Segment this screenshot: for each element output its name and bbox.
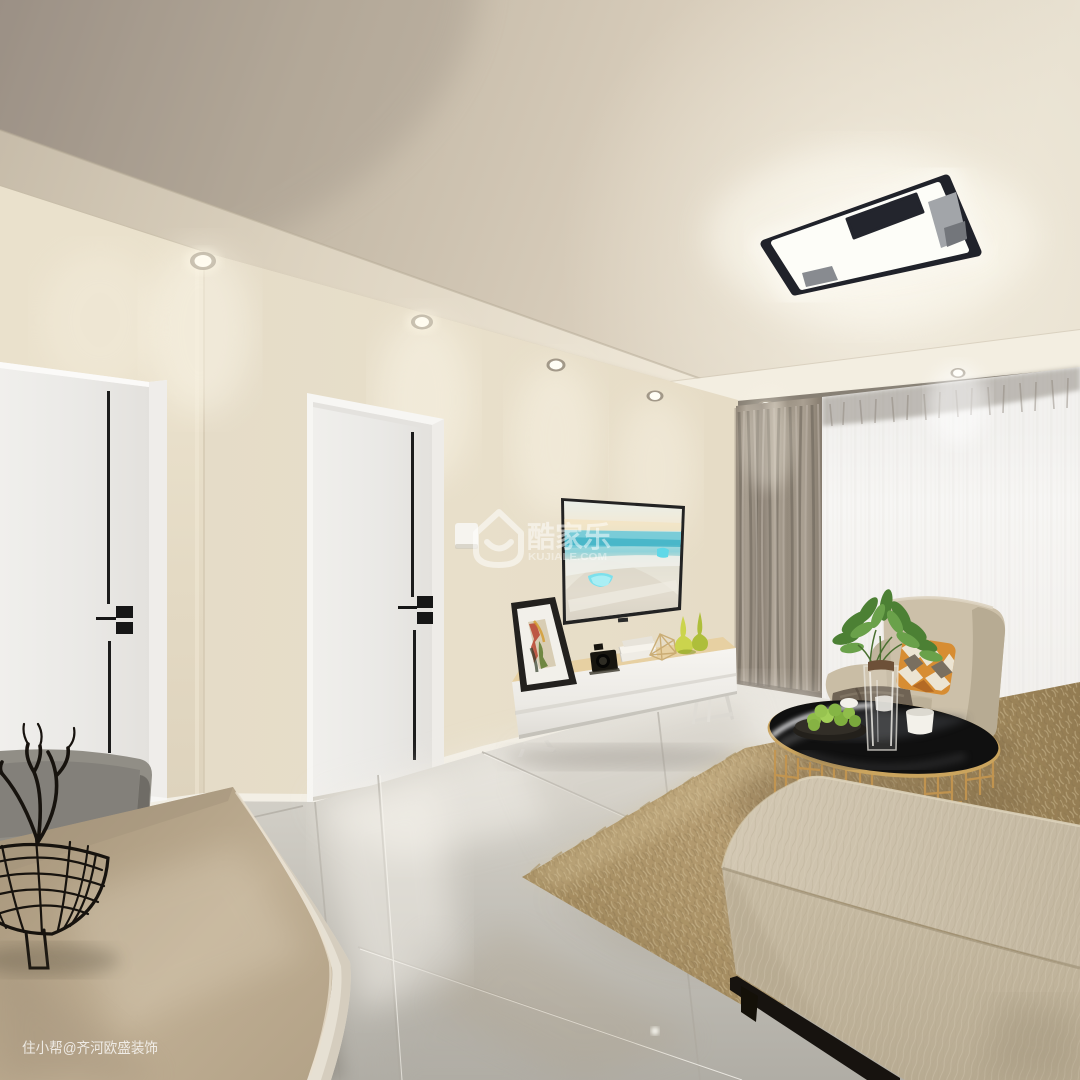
- svg-text:住小帮@齐河欧盛装饰: 住小帮@齐河欧盛装饰: [22, 1040, 158, 1057]
- svg-text:酷家乐: 酷家乐: [527, 520, 611, 554]
- svg-text:KUJIALE.COM: KUJIALE.COM: [528, 551, 607, 563]
